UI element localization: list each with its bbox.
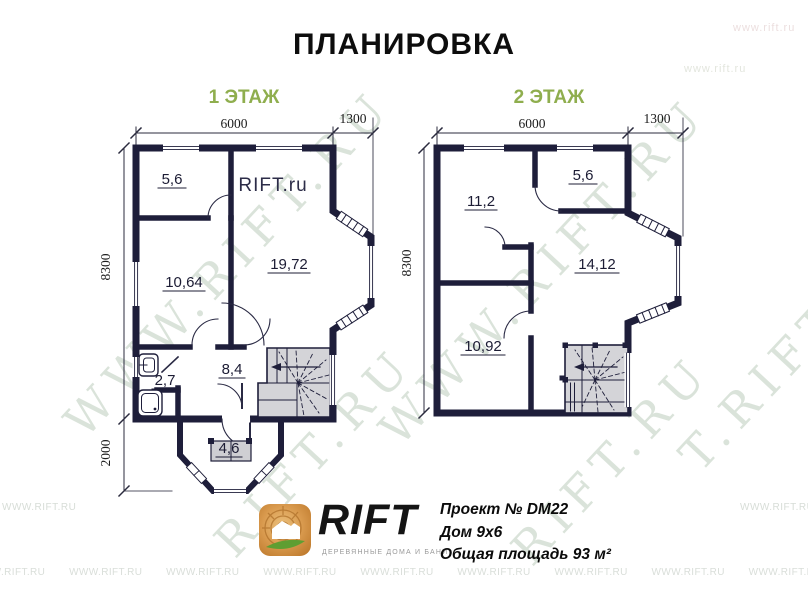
floor1-dim-bay: 1300 — [340, 111, 367, 126]
room-area-label: 10,64 — [165, 274, 203, 291]
floor2-dim-width: 6000 — [519, 116, 546, 131]
floor1-porch-door-gap — [222, 416, 250, 423]
floor2-stairs — [563, 343, 629, 414]
watermark-diagonal: T.RIFT.RU — [669, 207, 808, 482]
plan-sheet: ПЛАНИРОВКА www.rift.ru www.rift.ru WWW.R… — [0, 0, 808, 589]
floor1-dim-width: 6000 — [221, 116, 248, 131]
porch-window — [186, 463, 206, 484]
room-area-label: 5,6 — [162, 171, 183, 188]
project-info: Проект № DM22 Дом 9х6 Общая площадь 93 м… — [440, 499, 611, 567]
bay-window-hatched — [336, 211, 368, 236]
brand-tagline: ДЕРЕВЯННЫЕ ДОМА И БАНИ — [322, 549, 448, 556]
watermark-url: WWW.RIFT.RU — [166, 567, 239, 578]
watermark-url: WWW.RIFT.RU — [554, 567, 627, 578]
floor2-dim-bay: 1300 — [644, 111, 671, 126]
floor1-dim-height: 8300 — [98, 253, 113, 280]
watermark-url: WWW.RIFT.RU — [360, 567, 433, 578]
project-number: Проект № DM22 — [440, 499, 611, 522]
room-area-label: 5,6 — [573, 167, 594, 184]
room-area-label: 2,7 — [155, 372, 176, 389]
brand-logo-text: RIFT — [318, 496, 418, 545]
room-area-label: 10,92 — [464, 338, 502, 355]
bay-window-hatched — [636, 303, 669, 323]
room-area-label: 14,12 — [578, 256, 616, 273]
floor1-dim-porch: 2000 — [98, 439, 113, 466]
rift-logo-icon — [258, 503, 312, 557]
watermark-url: WWW.RIFT.RU — [652, 567, 725, 578]
watermark-url: WWW.RIFT.RU — [263, 567, 336, 578]
watermark-bottom-row: WWW.RIFT.RU WWW.RIFT.RU WWW.RIFT.RU WWW.… — [0, 567, 808, 578]
floor1-label: 1 ЭТАЖ — [209, 87, 280, 108]
watermark-url: WWW.RIFT.RU — [749, 567, 808, 578]
bay-window-hatched — [637, 214, 670, 237]
watermark-url: WWW.RIFT.RU — [457, 567, 530, 578]
shower-icon — [138, 390, 162, 416]
room-area-label: 4,6 — [219, 440, 240, 457]
room-area-label: 11,2 — [467, 193, 495, 210]
house-size: Дом 9х6 — [440, 522, 611, 545]
floor2-dim-height: 8300 — [399, 249, 414, 276]
floor2-label: 2 ЭТАЖ — [514, 87, 585, 108]
room-area-label: 19,72 — [270, 256, 308, 273]
diagonal-watermarks: WWW.RIFT.RU RIFT.RU WWW.RIFT.RU RIFT.RU … — [54, 78, 808, 576]
floor1-stairs — [258, 348, 330, 417]
watermark-url: WWW.RIFT.RU — [69, 567, 142, 578]
plan-inner-watermark: RIFT.ru — [238, 175, 307, 196]
watermark-url: WWW.RIFT.RU — [0, 567, 45, 578]
room-area-label: 8,4 — [222, 361, 243, 378]
bay-window-hatched — [336, 305, 368, 330]
total-area: Общая площадь 93 м² — [440, 544, 611, 567]
